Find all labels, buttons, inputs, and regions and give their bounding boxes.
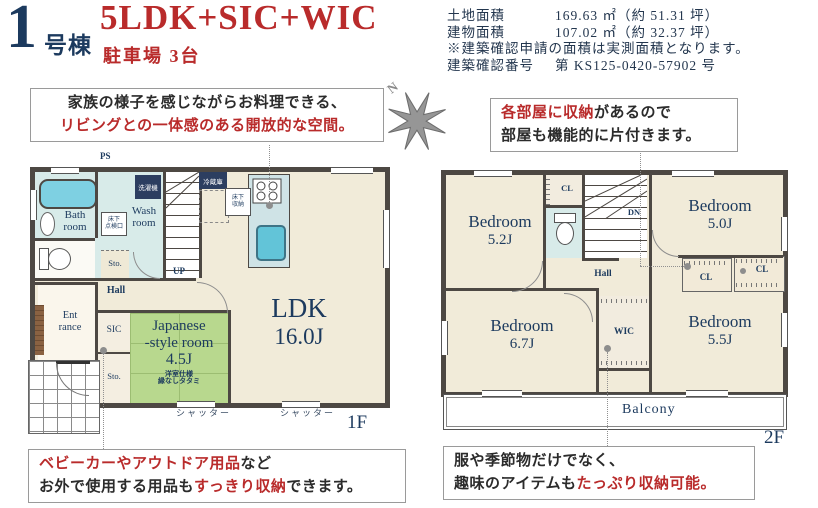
bedroom-5-5-size: 5.5J xyxy=(668,332,772,349)
sic-black2-text: お外で使用する用品も xyxy=(39,479,194,495)
callout-wic-line2: 趣味のアイテムもたっぷり収納可能。 xyxy=(454,473,744,496)
entrance-porch xyxy=(28,360,100,434)
leader-kitchen xyxy=(269,145,270,202)
callout-wic: 服や季節物だけでなく、 趣味のアイテムもたっぷり収納可能。 xyxy=(443,446,755,500)
site-info: 土地面積 169.63 ㎡（約 51.31 坪） 建物面積 107.02 ㎡（約… xyxy=(447,8,750,74)
leader-closet-horizontal xyxy=(640,266,686,267)
land-area-row: 土地面積 169.63 ㎡（約 51.31 坪） xyxy=(447,8,750,25)
window-1f-left xyxy=(30,190,37,220)
window-1f-bath xyxy=(51,167,79,174)
sic-red2-text: すっきり収納 xyxy=(194,479,286,495)
bedroom-6-7-name: Bedroom xyxy=(474,317,570,336)
inspection-label-2: 点検口 xyxy=(105,224,123,231)
leader-closet-dot xyxy=(684,263,691,270)
bedroom-6-7-label: Bedroom 6.7J xyxy=(474,317,570,352)
ldk-label: LDK 16.0J xyxy=(263,294,335,349)
leader-wic-dot xyxy=(604,345,611,352)
kitchen-sink xyxy=(256,225,286,261)
stairs-dn-label: DN xyxy=(622,208,646,217)
refrigerator-label: 冷蔵庫 xyxy=(199,172,227,189)
window-2f-bottom-right xyxy=(686,390,728,397)
wic-hatch-top xyxy=(601,299,647,303)
wall-b2-bottom xyxy=(678,255,783,258)
window-1f-shutter1 xyxy=(177,401,215,408)
washroom-label-1: Wash xyxy=(132,205,156,217)
window-2f-right-upper xyxy=(781,217,788,251)
balcony: Balcony xyxy=(443,394,787,430)
sic-black3-text: できます。 xyxy=(286,479,362,495)
ldk-size: 16.0J xyxy=(263,324,335,349)
hall-2f-label: Hall xyxy=(588,269,618,279)
bathroom-label-2: room xyxy=(63,221,86,233)
closet-top-label: CL xyxy=(554,184,580,193)
plan-title: 5LDK+SIC+WIC xyxy=(100,0,378,38)
floor1-label: 1F xyxy=(347,413,367,434)
underfloor-storage: 床下 収納 xyxy=(225,188,251,216)
shutter-label-1: シャッター xyxy=(176,409,231,419)
storage-black-text: があるので xyxy=(594,105,672,121)
leader-wic xyxy=(607,352,608,446)
closet-b-label: CL xyxy=(748,265,776,275)
ps-duct-box xyxy=(101,167,113,172)
entrance-label-2: rance xyxy=(59,322,82,333)
land-area-value: 169.63 ㎡（約 51.31 坪） xyxy=(555,8,719,25)
window-2f-top-right xyxy=(672,170,714,177)
ldk-door-arc xyxy=(197,282,228,313)
window-2f-left xyxy=(441,321,448,355)
confirmation-label: 建築確認番号 xyxy=(447,58,555,75)
stove-icon xyxy=(252,178,282,204)
area-note: ※建築確認申請の面積は実測面積となります。 xyxy=(447,41,750,58)
bedroom-5-5-name: Bedroom xyxy=(668,313,772,332)
callout-bedroom-storage-line1: 各部屋に収納があるので xyxy=(501,102,727,125)
wic-black-text: 趣味のアイテムも xyxy=(454,476,577,492)
closet-b-dot xyxy=(740,268,746,274)
leader-sic xyxy=(103,354,104,449)
window-2f-bottom-left xyxy=(482,390,522,397)
window-1f-top xyxy=(331,167,373,174)
bedroom-5-2-label: Bedroom 5.2J xyxy=(454,213,546,248)
bedroom-5-0-label: Bedroom 5.0J xyxy=(668,197,772,232)
bedroom-5-0-name: Bedroom xyxy=(668,197,772,216)
closet-top-hatch xyxy=(546,175,550,205)
toilet-bowl-1f xyxy=(48,248,71,270)
floor2-plan: Bedroom 5.2J CL DN Hall Bedroom 5.0J xyxy=(441,170,788,397)
wic-label: WIC xyxy=(604,327,644,337)
sic-black-text: など xyxy=(241,456,272,472)
wall-b1-b3 xyxy=(446,288,546,291)
balcony-inner-line xyxy=(446,397,784,427)
callout-kitchen: 家族の様子を感じながらお料理できる、 リビングとの一体感のある開放的な空間。 xyxy=(30,88,384,142)
confirmation-value: 第 KS125-0420-57902 号 xyxy=(555,58,716,75)
land-area-label: 土地面積 xyxy=(447,8,555,25)
storage-washroom-label: Sto. xyxy=(103,259,127,268)
wall-stairs-b2 xyxy=(649,175,652,258)
tatami-note-2: 縁なしタタミ xyxy=(132,378,226,386)
japanese-room-label: Japanese -style room 4.5J 洋室仕様 縁なしタタミ xyxy=(132,318,226,386)
washroom-label: Wash room xyxy=(125,205,163,229)
callout-sic: ベビーカーやアウトドア用品など お外で使用する用品もすっきり収納できます。 xyxy=(28,449,406,503)
ps-label: PS xyxy=(100,152,111,162)
callout-sic-line2: お外で使用する用品もすっきり収納できます。 xyxy=(39,476,395,499)
leader-sic-dot xyxy=(100,347,107,354)
floorplan-flyer: 1 号棟 5LDK+SIC+WIC 駐車場 3台 土地面積 169.63 ㎡（約… xyxy=(0,0,818,508)
wall-stairs-bottom xyxy=(585,258,619,261)
bedroom-5-5-label: Bedroom 5.5J xyxy=(668,313,772,348)
window-2f-top-left xyxy=(474,170,512,177)
bedroom-5-2-size: 5.2J xyxy=(454,232,546,249)
wall-b3-wic xyxy=(596,291,599,392)
inspection-label-1: 床下 xyxy=(108,217,120,224)
ldk-name: LDK xyxy=(263,294,335,324)
confirmation-row: 建築確認番号 第 KS125-0420-57902 号 xyxy=(447,58,750,75)
callout-bedroom-storage: 各部屋に収納があるので 部屋も機能的に片付きます。 xyxy=(490,98,738,152)
window-1f-right xyxy=(383,210,390,268)
bathtub xyxy=(39,179,97,209)
wall-cl-toilet xyxy=(546,205,582,208)
leader-closet xyxy=(640,147,641,266)
wall-entrance-top xyxy=(35,282,98,285)
parking-info: 駐車場 3台 xyxy=(103,42,201,68)
stairs-up-label: UP xyxy=(165,267,193,277)
stairs-1f xyxy=(163,172,202,278)
toilet-bowl-2f xyxy=(556,222,574,245)
building-area-row: 建物面積 107.02 ㎡（約 32.37 坪） xyxy=(447,25,750,42)
callout-sic-line1: ベビーカーやアウトドア用品など xyxy=(39,453,395,476)
bathroom-label-1: Bath xyxy=(65,209,86,221)
wall-sic-top xyxy=(98,310,130,313)
stairs-winder-lines-1f xyxy=(166,172,199,210)
entrance-door-arc xyxy=(56,363,89,396)
callout-kitchen-line1: 家族の様子を感じながらお料理できる、 xyxy=(41,92,373,115)
entrance-door-panel xyxy=(35,305,44,355)
storage-red-text: 各部屋に収納 xyxy=(501,105,594,121)
japanese-room-name-1: Japanese xyxy=(132,318,226,335)
unit-label: 号棟 xyxy=(44,26,92,60)
underfloor-inspection-hatch: 床下 点検口 xyxy=(101,212,127,236)
closet-b-hatch-top xyxy=(736,259,781,263)
entrance-label: Ent rance xyxy=(49,310,91,333)
closet-b-hatch-bottom xyxy=(736,283,781,287)
balcony-label: Balcony xyxy=(622,402,676,417)
leader-kitchen-dot xyxy=(266,202,273,209)
bedroom-5-0-size: 5.0J xyxy=(668,216,772,233)
bedroom-5-2-name: Bedroom xyxy=(454,213,546,232)
shutter-label-2: シャッター xyxy=(280,409,335,419)
wic-red-text: たっぷり収納可能。 xyxy=(577,476,717,492)
window-1f-shutter2 xyxy=(282,401,320,408)
compass-rose-icon: N xyxy=(382,82,454,158)
hall-1f-label: Hall xyxy=(101,285,131,296)
window-2f-right-lower xyxy=(781,313,788,347)
callout-bedroom-storage-line2: 部屋も機能的に片付きます。 xyxy=(501,125,727,148)
cupboard-label-1: 床下 xyxy=(232,195,244,202)
floor2-label: 2F xyxy=(764,428,784,449)
building-area-label: 建物面積 xyxy=(447,25,555,42)
sic-label: SIC xyxy=(99,325,129,335)
building-area-value: 107.02 ㎡（約 32.37 坪） xyxy=(555,25,719,42)
wall-japanese-right xyxy=(228,310,231,403)
japanese-room-name-2: -style room xyxy=(132,335,226,352)
closet-a-label: CL xyxy=(690,273,722,283)
wall-hall-b3 xyxy=(546,288,599,291)
unit-number: 1 xyxy=(6,0,37,63)
callout-kitchen-line2: リビングとの一体感のある開放的な空間。 xyxy=(41,115,373,138)
entrance-label-1: Ent xyxy=(63,310,78,321)
wall-toilet-stairs xyxy=(582,175,585,261)
cupboard-label-2: 収納 xyxy=(232,202,244,209)
bedroom-6-7-size: 6.7J xyxy=(474,336,570,353)
washing-machine: 洗濯機 xyxy=(135,175,161,199)
bedroom-5-0-door-arc xyxy=(652,230,679,257)
wall-hall-top xyxy=(35,278,196,281)
sic-red-text: ベビーカーやアウトドア用品 xyxy=(39,456,241,472)
wall-wic-b4 xyxy=(649,258,652,392)
bathroom-label: Bath room xyxy=(53,209,97,233)
washroom-label-2: room xyxy=(132,217,155,229)
callout-wic-line1: 服や季節物だけでなく、 xyxy=(454,450,744,473)
japanese-room-size: 4.5J xyxy=(132,351,226,369)
